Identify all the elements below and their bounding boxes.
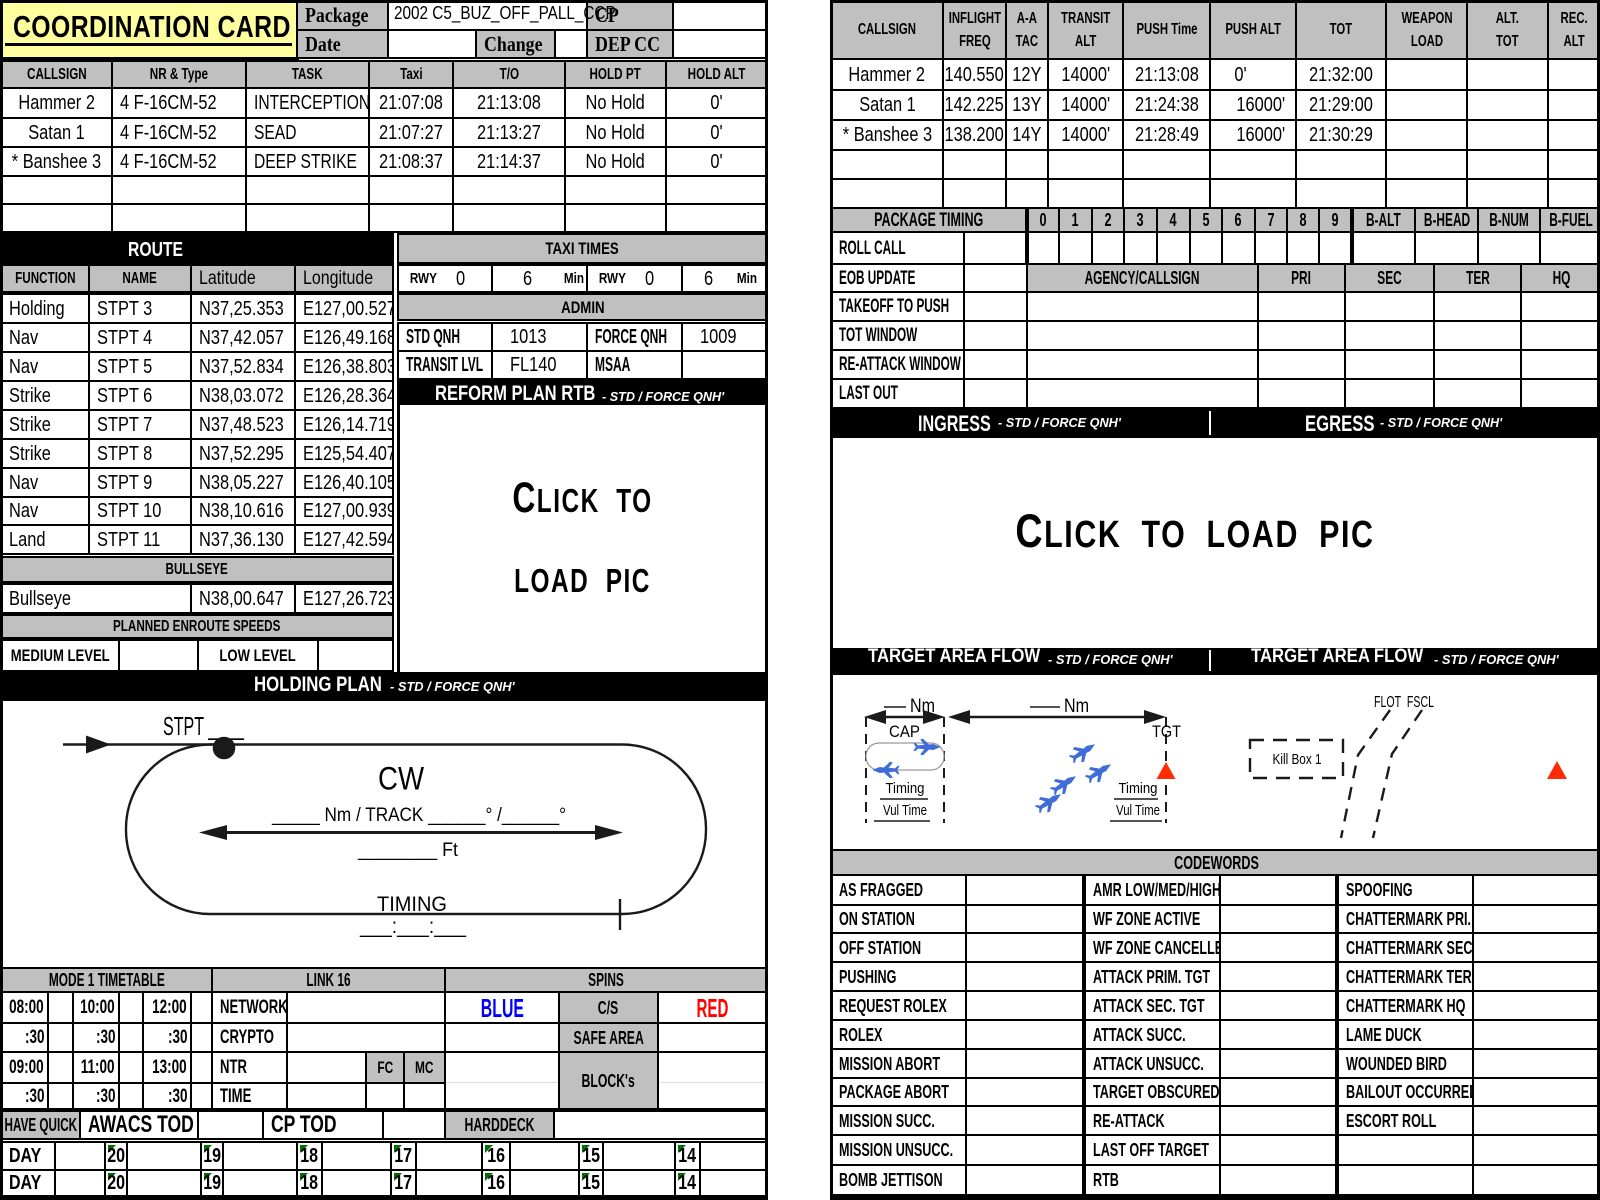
svg-text:FLOT FSCL: FLOT FSCL <box>1374 694 1434 711</box>
svg-text:Kill Box 1: Kill Box 1 <box>1273 751 1322 768</box>
svg-text:Vul Time: Vul Time <box>883 802 927 819</box>
svg-text:CW: CW <box>378 761 425 797</box>
svg-text:TIMING: TIMING <box>377 893 447 916</box>
svg-text:Timing: Timing <box>1119 780 1158 797</box>
svg-text:________ Ft: ________ Ft <box>357 840 459 861</box>
svg-text:STPT ____: STPT ____ <box>163 711 244 741</box>
svg-text:Vul Time: Vul Time <box>1116 802 1160 819</box>
svg-text:Timing: Timing <box>886 780 925 797</box>
svg-text:TGT: TGT <box>1152 722 1181 741</box>
svg-text:___:___:___: ___:___:___ <box>359 915 466 938</box>
svg-text:CAP: CAP <box>889 722 920 741</box>
svg-text:Nm: Nm <box>1064 696 1089 717</box>
svg-text:_____ Nm / TRACK ______° /____: _____ Nm / TRACK ______° /______° <box>271 805 566 826</box>
